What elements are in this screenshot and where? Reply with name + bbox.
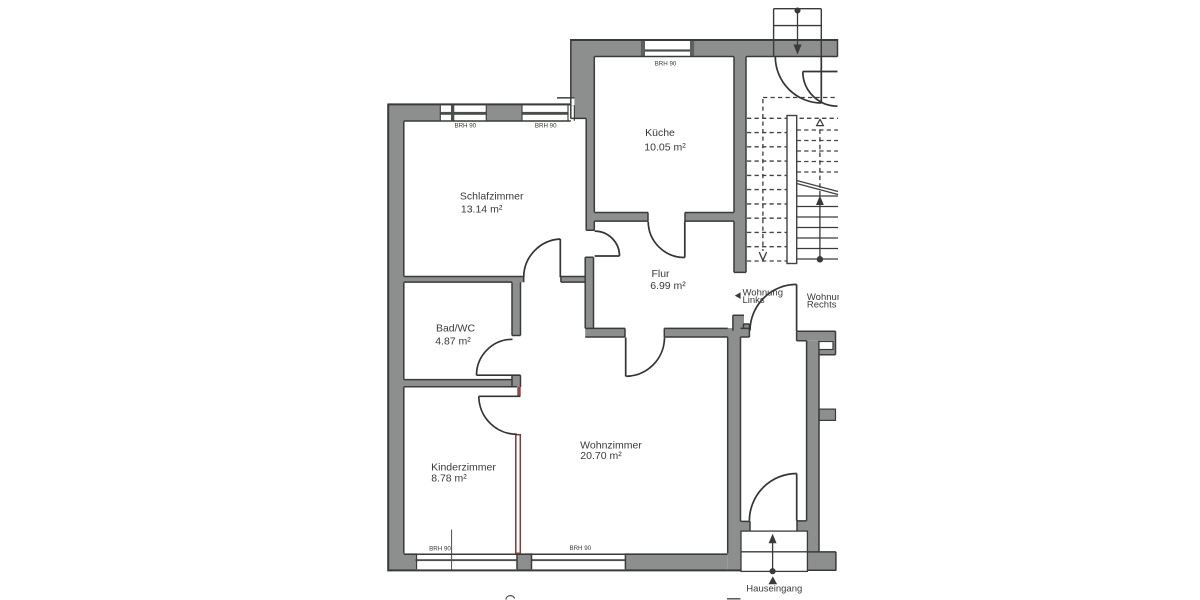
svg-text:BRH 90: BRH 90 xyxy=(569,545,591,552)
svg-text:Links: Links xyxy=(743,295,765,306)
svg-text:8.78 m²: 8.78 m² xyxy=(431,473,467,485)
svg-text:BRH 90: BRH 90 xyxy=(429,545,451,552)
svg-text:20.70 m²: 20.70 m² xyxy=(580,450,622,462)
svg-text:BRH 90: BRH 90 xyxy=(454,123,476,130)
svg-text:4.87 m²: 4.87 m² xyxy=(435,336,471,348)
svg-text:BRH 90: BRH 90 xyxy=(535,122,557,129)
svg-text:Küche: Küche xyxy=(645,127,675,139)
svg-text:13.14 m²: 13.14 m² xyxy=(461,204,503,216)
svg-text:Hauseingang: Hauseingang xyxy=(746,584,802,595)
svg-text:BRH 90: BRH 90 xyxy=(655,61,677,68)
svg-text:Flur: Flur xyxy=(651,268,670,280)
svg-text:Schlafzimmer: Schlafzimmer xyxy=(460,191,524,203)
svg-text:6.99 m²: 6.99 m² xyxy=(650,280,686,292)
svg-text:Bad/WC: Bad/WC xyxy=(436,323,476,335)
svg-text:Rechts: Rechts xyxy=(807,300,837,311)
svg-text:10.05 m²: 10.05 m² xyxy=(644,142,686,154)
